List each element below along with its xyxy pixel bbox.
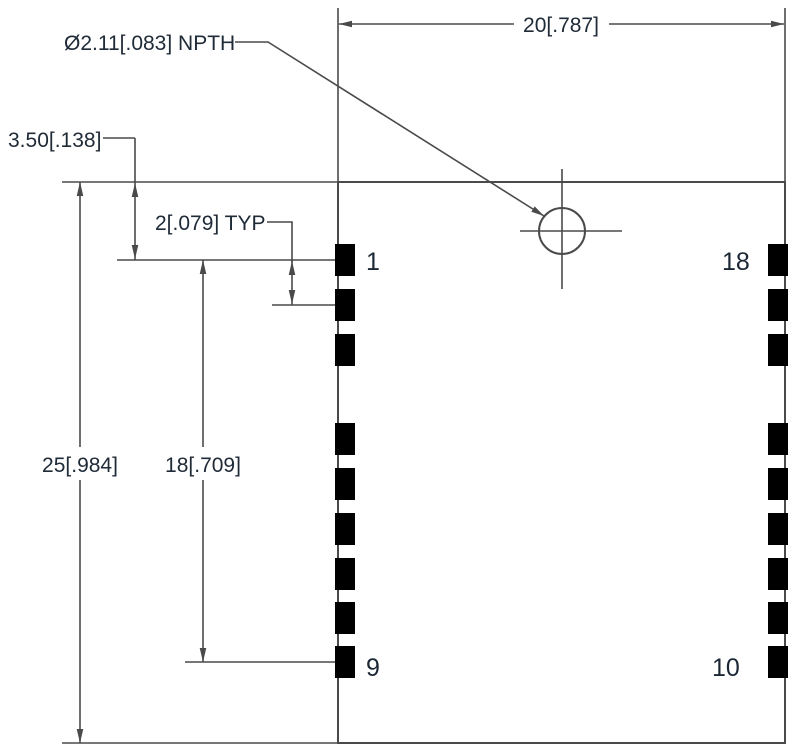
dim-pin1-offset-arrow-top xyxy=(132,183,139,197)
pad-pin-15 xyxy=(768,423,788,455)
dim-pin1-offset-label: 3.50[.138] xyxy=(8,129,101,152)
pad-pin-9 xyxy=(335,646,355,678)
pin-label-18: 18 xyxy=(722,248,750,276)
dim-pin-span-arrow-bottom xyxy=(200,648,207,662)
pad-pin-5 xyxy=(335,468,355,500)
pad-pin-16 xyxy=(768,334,788,366)
pad-pin-3 xyxy=(335,334,355,366)
pad-pin-14 xyxy=(768,468,788,500)
dim-width-arrow-left xyxy=(339,21,352,28)
pad-pin-12 xyxy=(768,558,788,590)
pin-label-10: 10 xyxy=(712,654,740,682)
pad-pin-7 xyxy=(335,558,355,590)
dim-width-label: 20[.787] xyxy=(523,14,599,37)
pad-pin-4 xyxy=(335,423,355,455)
pad-pin-18 xyxy=(768,244,788,276)
pin-label-9: 9 xyxy=(366,654,380,682)
dimension-drawing-canvas: 20[.787] 25[.984] 18[.709] 3.50[.138] 2[… xyxy=(0,0,800,753)
dim-pin-span-label: 18[.709] xyxy=(165,454,241,477)
dim-height-arrow-bottom xyxy=(77,729,84,743)
dim-width-20mm: 20[.787] xyxy=(339,11,784,38)
dim-height-label: 25[.984] xyxy=(42,454,118,477)
hole-callout-arrow xyxy=(531,206,544,216)
dim-pin-span-arrow-top xyxy=(200,260,207,274)
pad-pin-6 xyxy=(335,513,355,545)
dim-pin-span-18mm: 18[.709] xyxy=(160,260,246,662)
dim-pin1-offset-3.5mm: 3.50[.138] xyxy=(8,129,138,260)
dim-pin1-offset-arrow-bottom xyxy=(132,245,139,259)
dim-height-25mm: 25[.984] xyxy=(36,182,124,743)
mounting-hole xyxy=(520,169,622,289)
dim-pad-pitch-2mm: 2[.079] TYP xyxy=(155,212,295,305)
pad-pin-1 xyxy=(335,244,355,276)
hole-callout-leader xyxy=(235,42,544,216)
pad-pin-13 xyxy=(768,513,788,545)
pad-pin-11 xyxy=(768,602,788,634)
dim-pad-pitch-arrow-bottom xyxy=(289,290,296,304)
package-dimension-drawing: 20[.787] 25[.984] 18[.709] 3.50[.138] 2[… xyxy=(0,0,800,753)
pad-pin-17 xyxy=(768,289,788,321)
pad-pin-10 xyxy=(768,646,788,678)
pin-label-1: 1 xyxy=(366,248,380,276)
hole-callout-label: Ø2.11[.083] NPTH xyxy=(64,32,235,55)
dim-height-arrow-top xyxy=(77,182,84,196)
dim-width-arrow-right xyxy=(771,21,784,28)
dim-pad-pitch-leader xyxy=(267,222,292,262)
dim-pad-pitch-label: 2[.079] TYP xyxy=(155,212,266,235)
pad-pin-8 xyxy=(335,602,355,634)
pad-pin-2 xyxy=(335,289,355,321)
dim-pad-pitch-arrow-top xyxy=(289,261,296,275)
